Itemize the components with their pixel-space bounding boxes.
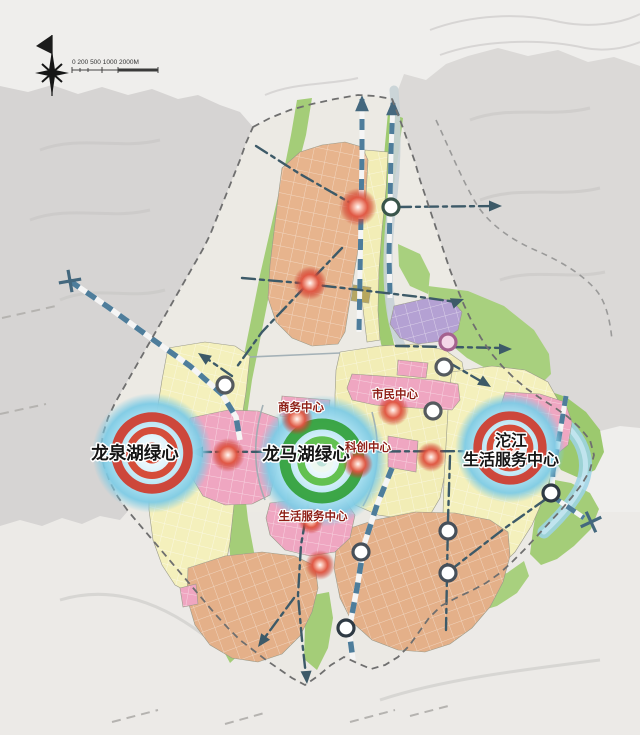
label-longma-green-heart: 龙马湖绿心 [262, 444, 350, 464]
label-life-service-center: 生活服务中心 [279, 509, 348, 523]
scale-bar-label: 0 200 500 1000 2000M [72, 59, 139, 66]
red-glow-marker [339, 188, 377, 226]
district-pink-sliver-sw [180, 584, 198, 607]
red-glow-marker [293, 266, 327, 300]
label-tuojiang-line2: 生活服务中心 [463, 450, 559, 469]
station-marker [383, 199, 399, 215]
label-tuojiang-line1: 沱江 [495, 431, 527, 450]
map-canvas: 龙泉湖绿心 龙马湖绿心 沱江 生活服务中心 商务中心 市民中心 科创中心 生活服… [0, 0, 640, 735]
station-marker [338, 620, 354, 636]
planning-map: 龙泉湖绿心 龙马湖绿心 沱江 生活服务中心 商务中心 市民中心 科创中心 生活服… [0, 0, 640, 735]
scale-bar-thick-segment [118, 69, 158, 72]
station-marker [440, 334, 456, 350]
label-civic-center: 市民中心 [372, 387, 418, 401]
district-pink-scitech [388, 436, 418, 472]
red-glow-marker [416, 442, 446, 472]
label-scitech-center: 科创中心 [345, 440, 391, 454]
station-marker [353, 544, 369, 560]
station-marker [440, 523, 456, 539]
label-business-center: 商务中心 [278, 400, 324, 414]
station-marker [425, 403, 441, 419]
station-marker [436, 359, 452, 375]
district-pink-small-north [397, 360, 428, 378]
red-glow-marker [211, 438, 245, 472]
label-longquan-green-heart: 龙泉湖绿心 [91, 443, 179, 463]
station-marker [440, 565, 456, 581]
station-marker [543, 485, 559, 501]
station-marker [217, 377, 233, 393]
red-glow-marker [305, 550, 335, 580]
